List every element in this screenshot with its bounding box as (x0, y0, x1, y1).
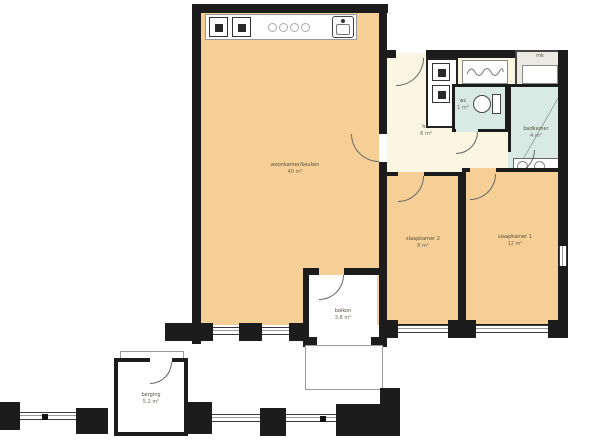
window (212, 414, 260, 422)
window-pane (212, 417, 260, 418)
window (398, 325, 448, 333)
washer-drum (438, 69, 446, 77)
dryer-icon (432, 85, 450, 103)
room-label-badkamer: badkamer 4 m² (508, 126, 564, 140)
balkon-railing-outline (305, 345, 383, 390)
room-label-wc: wc 1 m² (452, 98, 474, 112)
window (20, 412, 76, 420)
window-pane (262, 330, 289, 331)
door-pivot (320, 416, 326, 422)
wall-segment (383, 320, 398, 338)
door-gap (470, 168, 496, 173)
room-area: 12 m² (480, 241, 550, 248)
room-name: wc (452, 98, 474, 105)
room-area: 6 m² (404, 131, 448, 138)
room-name: slaapkamer 2 (390, 236, 456, 243)
window-pane (213, 330, 239, 331)
room-label-berging: berging 5,2 m² (120, 392, 182, 406)
wall-segment (0, 402, 20, 430)
room-name: badkamer (508, 126, 564, 133)
sink-icon (332, 16, 354, 38)
window (213, 327, 239, 335)
oven-door (215, 24, 223, 32)
room-area: 8 m² (390, 243, 456, 250)
wall-segment (380, 388, 400, 436)
window (559, 246, 567, 266)
room-label-slaapkamer2: slaapkamer 2 8 m² (390, 236, 456, 250)
window-pane (562, 246, 563, 266)
wall-segment (548, 320, 568, 338)
wall-segment (239, 323, 262, 341)
dryer-drum (438, 91, 446, 99)
wall-segment (184, 402, 212, 434)
room-name: woonkamer/keuken (240, 162, 350, 169)
room-label-slaapkamer1: slaapkamer 1 12 m² (480, 234, 550, 248)
sink-tap (341, 19, 345, 23)
wall-segment (448, 320, 476, 338)
wall-segment (379, 4, 387, 134)
window-pane (398, 328, 448, 329)
toilet-tank (492, 94, 501, 114)
wall-segment (76, 408, 108, 434)
wall-segment (303, 268, 309, 345)
wall-segment (383, 50, 396, 58)
wall-segment (165, 323, 213, 341)
floor-plan: woonkamer/keuken 40 m² balkon 3,8 m² hal… (0, 0, 600, 448)
room-slaapkamer2 (383, 172, 462, 328)
window-pane (20, 415, 76, 416)
fridge-door (238, 24, 246, 32)
cv-unit (462, 60, 508, 84)
sink-basin (336, 24, 350, 35)
mk-cabinet (522, 65, 558, 84)
oven-icon (209, 17, 228, 37)
burner-icon (268, 23, 277, 32)
fridge-icon (232, 17, 251, 37)
window (286, 414, 336, 422)
room-name: berging (120, 392, 182, 399)
door-pivot (42, 414, 48, 420)
room-area: 5,2 m² (120, 399, 182, 406)
room-area: 4 m² (508, 133, 564, 140)
window (476, 325, 548, 333)
room-label-balkon: balkon 3,8 m² (309, 308, 377, 322)
burner-icon (301, 23, 310, 32)
wall-segment (558, 50, 568, 338)
room-area: 40 m² (240, 169, 350, 176)
burner-icon (290, 23, 299, 32)
room-area: 3,8 m² (309, 315, 377, 322)
cv-unit-icon (463, 61, 507, 81)
window-pane (476, 328, 548, 329)
wall-segment (336, 404, 384, 436)
room-label-mk: mk (517, 53, 563, 60)
wall-segment (192, 4, 201, 344)
room-name: slaapkamer 1 (480, 234, 550, 241)
window (262, 327, 289, 335)
toilet-icon (473, 95, 491, 113)
wall-segment (192, 4, 388, 13)
window-pane (286, 417, 336, 418)
room-area: 1 m² (452, 105, 474, 112)
room-label-living: woonkamer/keuken 40 m² (240, 162, 350, 176)
cooktop-icon (268, 17, 310, 37)
room-name: balkon (309, 308, 377, 315)
burner-icon (279, 23, 288, 32)
wall-segment (260, 408, 286, 436)
washer-icon (432, 63, 450, 81)
